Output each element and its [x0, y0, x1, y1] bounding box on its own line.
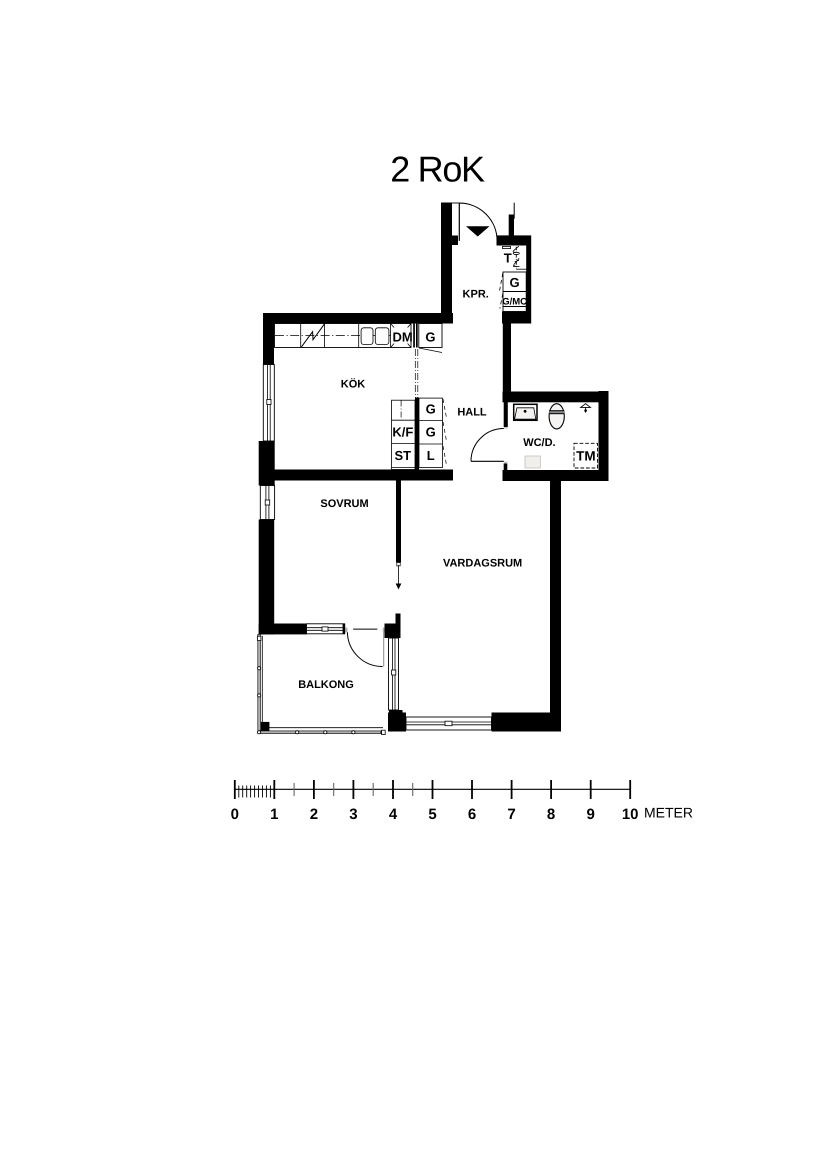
- svg-text:ST: ST: [394, 448, 411, 463]
- svg-text:DM: DM: [393, 330, 413, 345]
- svg-text:T: T: [504, 250, 512, 265]
- svg-text:6: 6: [468, 806, 476, 823]
- svg-text:7: 7: [507, 806, 515, 823]
- svg-text:BALKONG: BALKONG: [298, 679, 354, 691]
- svg-text:G: G: [426, 401, 436, 416]
- svg-text:L: L: [427, 448, 435, 463]
- svg-text:K/F: K/F: [392, 425, 413, 440]
- svg-text:G: G: [510, 275, 520, 290]
- svg-text:METER: METER: [644, 805, 693, 821]
- svg-text:TM: TM: [576, 448, 596, 463]
- svg-text:G: G: [425, 330, 435, 345]
- svg-text:3: 3: [349, 806, 357, 823]
- svg-text:4: 4: [389, 806, 398, 823]
- svg-text:2: 2: [310, 806, 318, 823]
- svg-text:SOVRUM: SOVRUM: [320, 498, 368, 510]
- svg-text:8: 8: [547, 806, 555, 823]
- svg-text:1: 1: [270, 806, 278, 823]
- svg-text:2 RoK: 2 RoK: [390, 149, 485, 190]
- svg-text:WC/D.: WC/D.: [523, 437, 555, 449]
- svg-text:HALL: HALL: [457, 407, 487, 419]
- svg-text:0: 0: [231, 806, 239, 823]
- svg-text:KPR.: KPR.: [463, 289, 489, 301]
- svg-text:9: 9: [587, 806, 595, 823]
- svg-text:KÖK: KÖK: [341, 377, 366, 390]
- svg-text:G: G: [426, 425, 436, 440]
- svg-text:VARDAGSRUM: VARDAGSRUM: [443, 558, 522, 570]
- svg-text:10: 10: [622, 806, 639, 823]
- svg-text:5: 5: [428, 806, 436, 823]
